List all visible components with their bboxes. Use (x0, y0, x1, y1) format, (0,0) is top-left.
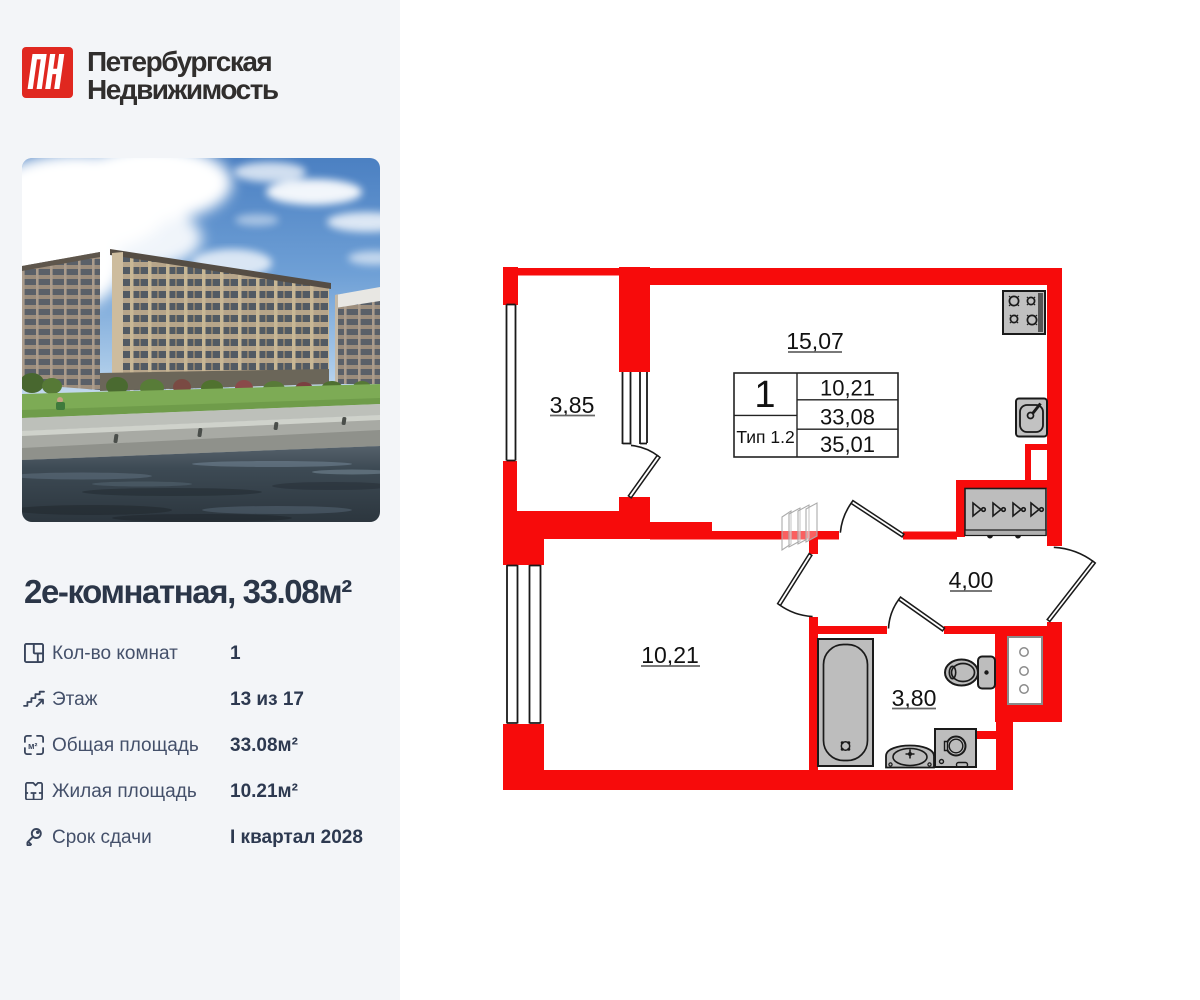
svg-text:33,08: 33,08 (820, 405, 875, 430)
svg-text:35,01: 35,01 (820, 432, 875, 457)
svg-text:15,07: 15,07 (786, 328, 844, 354)
svg-text:4,00: 4,00 (949, 567, 994, 593)
svg-text:1: 1 (754, 374, 775, 416)
svg-text:Тип 1.2: Тип 1.2 (736, 427, 794, 447)
svg-text:3,80: 3,80 (892, 685, 937, 711)
svg-text:3,85: 3,85 (550, 392, 595, 418)
svg-text:м²: м² (28, 740, 38, 750)
svg-text:10,21: 10,21 (820, 376, 875, 401)
svg-text:10,21: 10,21 (641, 642, 699, 668)
